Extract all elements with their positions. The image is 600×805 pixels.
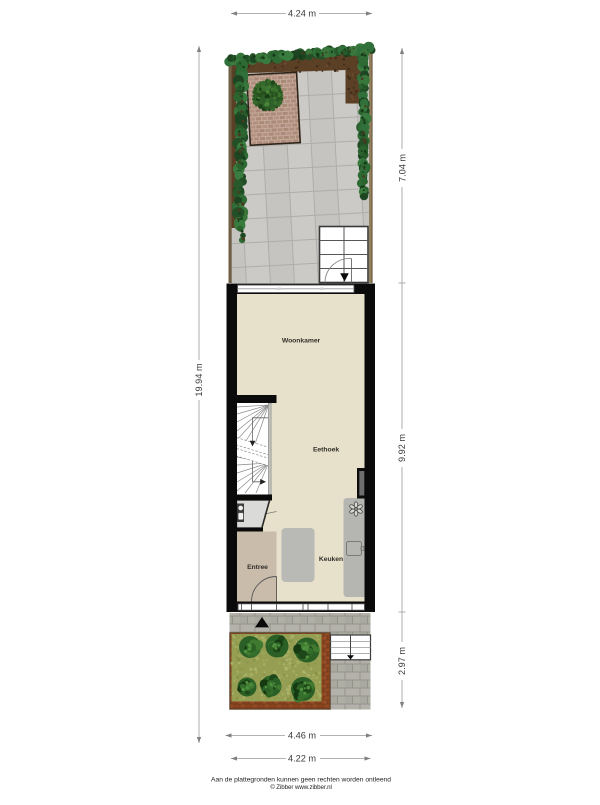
svg-text:19.94 m: 19.94 m <box>194 363 204 397</box>
svg-text:7.04 m: 7.04 m <box>398 154 408 182</box>
svg-text:Aan de plattegronden kunnen ge: Aan de plattegronden kunnen geen rechten… <box>211 776 391 783</box>
svg-text:4.22 m: 4.22 m <box>288 753 316 763</box>
svg-text:Keuken: Keuken <box>319 556 343 563</box>
svg-text:2.97 m: 2.97 m <box>397 647 407 675</box>
svg-text:Entree: Entree <box>247 564 268 571</box>
svg-text:4.46 m: 4.46 m <box>288 730 316 740</box>
svg-text:© Zibber www.zibber.nl: © Zibber www.zibber.nl <box>270 784 332 791</box>
svg-text:Woonkamer: Woonkamer <box>282 338 321 345</box>
svg-text:Eethoek: Eethoek <box>313 447 339 454</box>
svg-text:9.92 m: 9.92 m <box>397 434 407 462</box>
svg-text:4.24 m: 4.24 m <box>288 8 316 18</box>
